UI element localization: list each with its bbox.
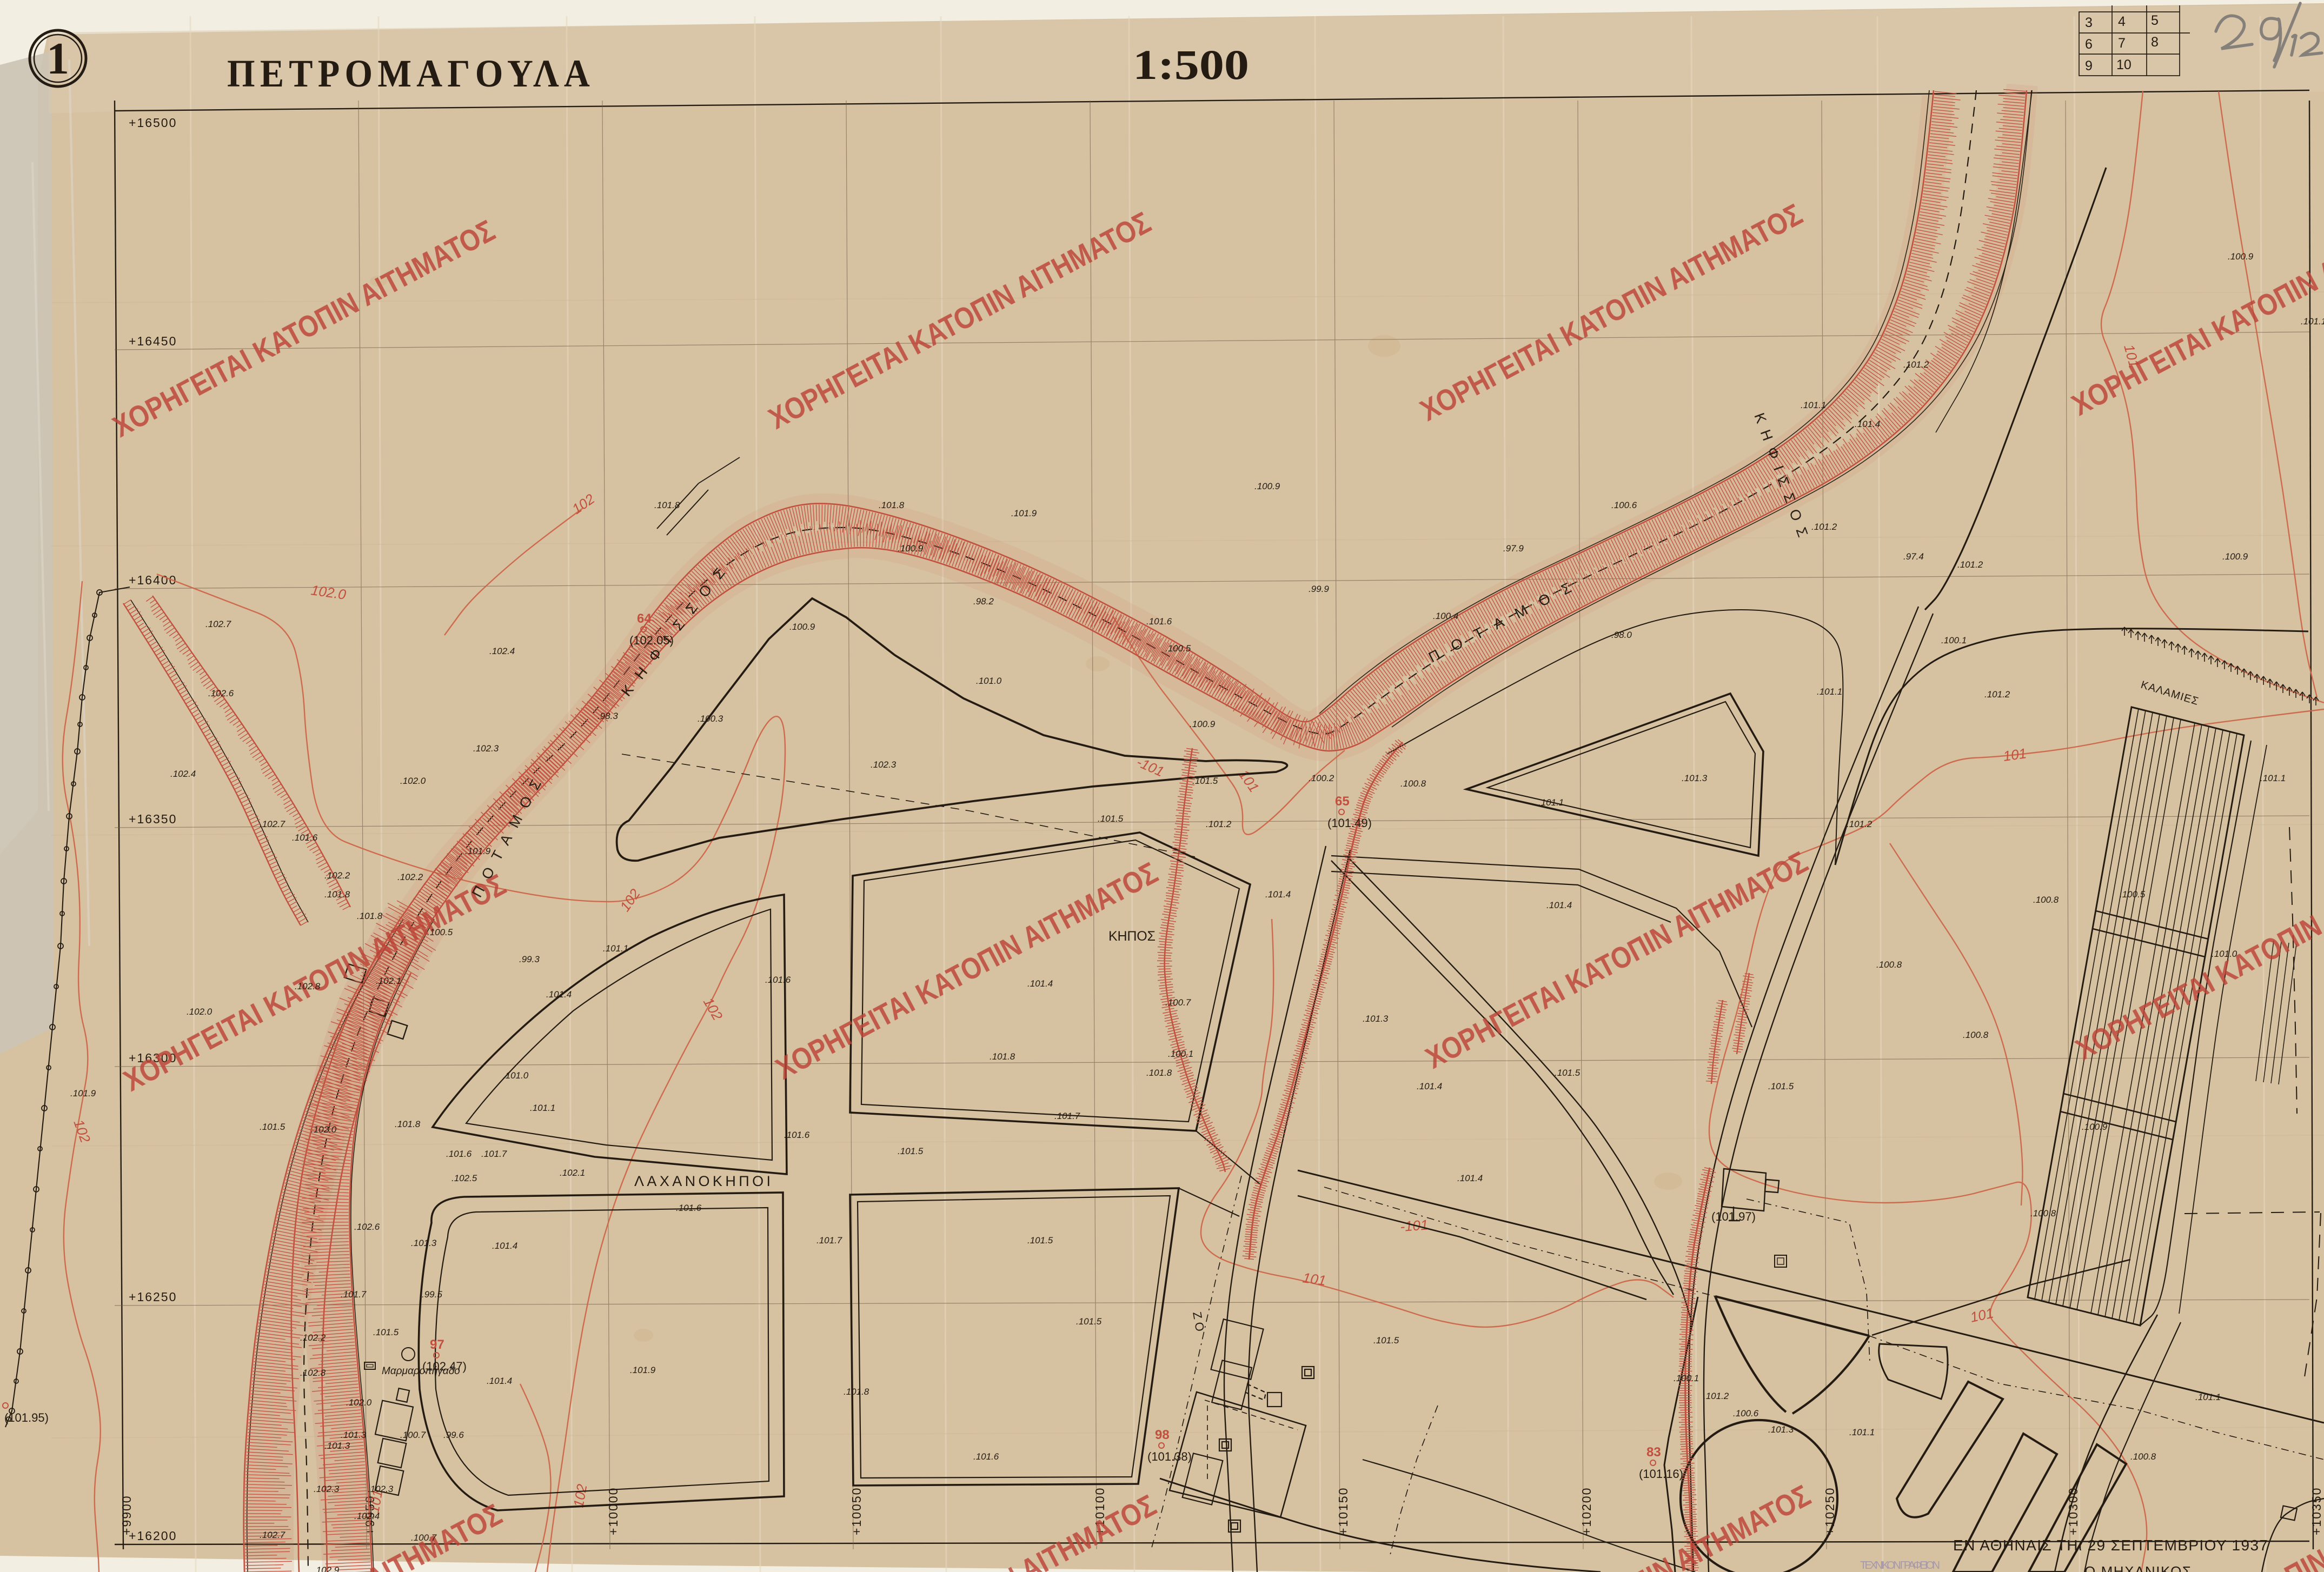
svg-text:.99.6: .99.6 <box>443 1430 464 1440</box>
svg-text:.100.5: .100.5 <box>1165 643 1191 654</box>
svg-text:.101.1: .101.1 <box>1817 687 1842 697</box>
svg-text:.101.6: .101.6 <box>765 975 791 985</box>
svg-text:.100.8: .100.8 <box>1876 960 1902 970</box>
svg-text:.101.8: .101.8 <box>990 1051 1015 1062</box>
svg-text:10: 10 <box>2116 57 2132 72</box>
svg-text:3: 3 <box>2085 15 2093 30</box>
svg-text:.101.6: .101.6 <box>446 1149 472 1159</box>
svg-text:+10250: +10250 <box>1823 1487 1837 1535</box>
svg-text:.102.2: .102.2 <box>324 870 350 881</box>
svg-text:+16250: +16250 <box>129 1290 177 1304</box>
svg-text:.101.1: .101.1 <box>1849 1427 1875 1437</box>
svg-text:.100.1: .100.1 <box>1941 635 1967 645</box>
svg-text:+10200: +10200 <box>1579 1487 1593 1535</box>
svg-text:.101.1: .101.1 <box>603 943 628 954</box>
svg-text:+10150: +10150 <box>1336 1487 1350 1535</box>
svg-text:(101.97): (101.97) <box>1711 1210 1756 1223</box>
svg-text:.102.4: .102.4 <box>354 1511 380 1521</box>
svg-text:.101.7: .101.7 <box>341 1289 367 1300</box>
svg-text:(101.38): (101.38) <box>1147 1450 1192 1463</box>
svg-text:.102.8: .102.8 <box>300 1368 326 1378</box>
svg-text:64: 64 <box>637 611 652 626</box>
svg-text:.101.3: .101.3 <box>341 1430 367 1440</box>
svg-text:.100.4: .100.4 <box>1433 611 1458 621</box>
svg-text:.102.3: .102.3 <box>871 760 897 770</box>
svg-text:(101.95): (101.95) <box>4 1411 49 1424</box>
svg-text:ΕΝ ΑΘΗΝΑΙΣ ΤΗι 29 ΣΕΠΤΕΜΒΡΙΟΥ: ΕΝ ΑΘΗΝΑΙΣ ΤΗι 29 ΣΕΠΤΕΜΒΡΙΟΥ 1937 <box>1953 1537 2269 1554</box>
svg-text:+16350: +16350 <box>129 812 177 826</box>
svg-text:97: 97 <box>430 1337 444 1352</box>
svg-text:+16450: +16450 <box>129 334 177 348</box>
svg-text:.101.3: .101.3 <box>1682 773 1708 783</box>
svg-text:.101.0: .101.0 <box>976 676 1002 686</box>
svg-text:.102.6: .102.6 <box>354 1222 380 1232</box>
svg-text:.101.5: .101.5 <box>898 1146 924 1156</box>
svg-text:.101.8: .101.8 <box>324 889 350 900</box>
svg-text:.101.5: .101.5 <box>1768 1081 1794 1091</box>
svg-text:(101.49): (101.49) <box>1327 816 1372 830</box>
svg-text:.101.4: .101.4 <box>1417 1081 1442 1091</box>
svg-text:.101.3: .101.3 <box>324 1441 350 1451</box>
svg-text:.102.1: .102.1 <box>560 1168 585 1178</box>
svg-text:.101.1: .101.1 <box>1801 400 1826 410</box>
svg-text:.99.5: .99.5 <box>422 1289 442 1300</box>
svg-text:.101.2: .101.2 <box>1811 522 1837 532</box>
svg-text:.102.0: .102.0 <box>187 1007 213 1017</box>
svg-text:(102.47): (102.47) <box>422 1360 467 1373</box>
svg-text:.101.7: .101.7 <box>1054 1111 1080 1121</box>
svg-text:5: 5 <box>2151 13 2159 28</box>
svg-text:.100.9: .100.9 <box>2082 1122 2108 1132</box>
svg-text:.101.4: .101.4 <box>1265 889 1291 900</box>
svg-text:.101.3: .101.3 <box>1768 1424 1794 1435</box>
svg-text:.101.9: .101.9 <box>1011 508 1037 518</box>
svg-text:ΚΗΠΟΣ: ΚΗΠΟΣ <box>1108 929 1158 944</box>
svg-text:.101.2: .101.2 <box>1847 819 1873 829</box>
svg-text:+16400: +16400 <box>129 573 177 587</box>
svg-text:.102.3: .102.3 <box>473 743 499 754</box>
svg-text:4: 4 <box>2118 14 2126 29</box>
svg-text:ΛΑΧΑΝΟΚΗΠΟΙ: ΛΑΧΑΝΟΚΗΠΟΙ <box>634 1173 774 1189</box>
svg-text:+9900: +9900 <box>119 1495 134 1535</box>
svg-text:.101.2: .101.2 <box>1957 559 1983 570</box>
svg-text:(102.05): (102.05) <box>629 634 674 647</box>
svg-text:Ο ΜΗΧΑΝΙΚΟΣ: Ο ΜΗΧΑΝΙΚΟΣ <box>2084 1563 2193 1572</box>
svg-text:.100.9: .100.9 <box>1190 719 1216 729</box>
svg-text:.101.1: .101.1 <box>2260 773 2286 783</box>
svg-text:.100.2: .100.2 <box>1309 773 1334 783</box>
svg-text:.102.7: .102.7 <box>205 619 231 629</box>
svg-text:.101.0: .101.0 <box>2212 949 2237 959</box>
svg-text:.101.4: .101.4 <box>546 989 572 1000</box>
svg-text:.101.2: .101.2 <box>1703 1391 1729 1401</box>
svg-text:8: 8 <box>2151 35 2159 50</box>
svg-text:.101.9: .101.9 <box>465 846 491 856</box>
svg-text:.100.6: .100.6 <box>1733 1408 1759 1418</box>
svg-text:(101.16): (101.16) <box>1639 1467 1683 1481</box>
svg-text:ΠΕΤΡΟΜΑΓΟΥΛΑ: ΠΕΤΡΟΜΑΓΟΥΛΑ <box>227 52 595 95</box>
svg-text:.100.9: .100.9 <box>2222 551 2248 562</box>
svg-text:+10000: +10000 <box>606 1487 620 1535</box>
svg-text:.101.8: .101.8 <box>1146 1068 1172 1078</box>
svg-text:.101.2: .101.2 <box>1206 819 1232 829</box>
svg-text:.101.5: .101.5 <box>373 1327 399 1337</box>
svg-text:.98.3: .98.3 <box>597 711 618 721</box>
svg-text:83: 83 <box>1646 1445 1661 1460</box>
svg-text:.101.6: .101.6 <box>784 1130 810 1140</box>
svg-text:.102.0: .102.0 <box>346 1397 372 1408</box>
svg-text:.100.8: .100.8 <box>2033 895 2059 905</box>
svg-text:.102.7: .102.7 <box>260 1530 285 1540</box>
svg-text:.100.9: .100.9 <box>2228 251 2254 262</box>
svg-text:.101.4: .101.4 <box>1546 900 1572 910</box>
svg-text:.101.4: .101.4 <box>1457 1173 1483 1183</box>
svg-text:.101.6: .101.6 <box>1146 616 1172 627</box>
svg-text:.101.8: .101.8 <box>879 500 905 510</box>
svg-text:.102.0: .102.0 <box>400 776 426 786</box>
svg-text:.102.4: .102.4 <box>170 769 196 779</box>
svg-text:.102.6: .102.6 <box>208 688 234 698</box>
svg-text:.101.4: .101.4 <box>1855 419 1880 429</box>
svg-text:.101.5: .101.5 <box>1076 1316 1102 1327</box>
svg-text:.101.8: .101.8 <box>395 1119 421 1129</box>
svg-text:.101.8: .101.8 <box>357 911 383 921</box>
svg-text:.101.5: .101.5 <box>1192 776 1218 786</box>
svg-text:+10300: +10300 <box>2066 1487 2080 1535</box>
svg-text:.102.2: .102.2 <box>397 872 423 882</box>
svg-text:.100.7: .100.7 <box>400 1430 426 1440</box>
svg-text:.101.4: .101.4 <box>1027 978 1053 989</box>
svg-text:1:500: 1:500 <box>1133 41 1249 88</box>
svg-text:.100.7: .100.7 <box>411 1533 437 1543</box>
svg-text:9: 9 <box>2085 58 2093 74</box>
svg-text:+16500: +16500 <box>129 116 177 130</box>
svg-text:.101.8: .101.8 <box>844 1387 869 1397</box>
svg-text:98: 98 <box>1155 1428 1170 1442</box>
svg-text:6: 6 <box>2085 37 2093 52</box>
svg-text:.101.6: .101.6 <box>676 1203 702 1213</box>
svg-text:.102.2: .102.2 <box>300 1333 326 1343</box>
svg-text:+10050: +10050 <box>849 1487 864 1535</box>
svg-text:.97.9: .97.9 <box>1503 543 1524 554</box>
svg-text:.101.3: .101.3 <box>411 1238 437 1248</box>
svg-text:.102.8: .102.8 <box>295 981 321 991</box>
svg-text:.102.5: .102.5 <box>451 1173 477 1183</box>
svg-text:+10350: +10350 <box>2309 1487 2323 1535</box>
svg-text:7: 7 <box>2118 36 2126 51</box>
svg-text:101: 101 <box>1302 1269 1327 1289</box>
svg-text:.101.7: .101.7 <box>816 1235 842 1245</box>
svg-text:.100.9: .100.9 <box>1254 481 1280 491</box>
svg-text:.100.8: .100.8 <box>1963 1030 1989 1040</box>
svg-text:.101.9: .101.9 <box>630 1365 656 1375</box>
svg-text:.101.8: .101.8 <box>654 500 680 510</box>
svg-text:.102.0: .102.0 <box>311 1124 337 1135</box>
svg-text:1: 1 <box>47 34 69 84</box>
svg-text:.100.5: .100.5 <box>2120 889 2146 900</box>
svg-text:.102.3: .102.3 <box>314 1484 340 1494</box>
svg-text:.99.9: .99.9 <box>1309 584 1329 594</box>
svg-text:.101.9: .101.9 <box>70 1088 96 1098</box>
svg-text:.100.7: .100.7 <box>1165 997 1191 1008</box>
svg-text:.100.9: .100.9 <box>898 543 924 554</box>
svg-text:.100.1: .100.1 <box>1168 1049 1193 1059</box>
svg-text:.101.3: .101.3 <box>1363 1014 1389 1024</box>
svg-text:.98.2: .98.2 <box>973 596 994 607</box>
svg-text:.102.1: .102.1 <box>376 976 401 986</box>
svg-text:ΤΕΧΝΙΚΟΝ ΓΡΑΦΕΙΟΝ: ΤΕΧΝΙΚΟΝ ΓΡΑΦΕΙΟΝ <box>1860 1560 1941 1571</box>
svg-text:.102.4: .102.4 <box>489 646 515 656</box>
svg-text:.100.9: .100.9 <box>789 622 815 632</box>
svg-text:.101.5: .101.5 <box>1555 1068 1581 1078</box>
svg-text:.100.8: .100.8 <box>2130 1451 2156 1462</box>
svg-text:.101.2: .101.2 <box>1903 359 1929 370</box>
svg-text:.100.1: .100.1 <box>1674 1373 1699 1383</box>
svg-text:+16200: +16200 <box>129 1529 177 1543</box>
svg-text:.101.6: .101.6 <box>292 832 318 843</box>
svg-text:.101.7: .101.7 <box>481 1149 507 1159</box>
svg-text:.101.0: .101.0 <box>503 1070 529 1081</box>
svg-text:.99.3: .99.3 <box>519 954 540 964</box>
svg-text:.100.6: .100.6 <box>1611 500 1637 510</box>
svg-text:.98.0: .98.0 <box>1611 630 1632 640</box>
svg-text:.100.8: .100.8 <box>1400 778 1426 789</box>
svg-text:.102.3: .102.3 <box>368 1484 394 1494</box>
svg-text:.100.3: .100.3 <box>698 714 723 724</box>
svg-text:.101.5: .101.5 <box>1373 1335 1399 1345</box>
svg-text:.101.4: .101.4 <box>492 1241 517 1251</box>
svg-text:.100.5: .100.5 <box>427 927 453 937</box>
svg-text:.101.6: .101.6 <box>973 1451 999 1462</box>
svg-text:.101.4: .101.4 <box>487 1376 512 1386</box>
svg-text:.101.2: .101.2 <box>1984 689 2010 700</box>
svg-text:.101.1: .101.1 <box>2195 1392 2221 1402</box>
svg-text:.102.9: .102.9 <box>314 1565 340 1572</box>
svg-text:65: 65 <box>1335 794 1350 809</box>
svg-text:.101.5: .101.5 <box>1027 1235 1053 1245</box>
svg-text:.101.1: .101.1 <box>530 1103 555 1113</box>
svg-text:.100.8: .100.8 <box>2030 1208 2056 1218</box>
svg-text:.102.7: .102.7 <box>260 819 285 829</box>
svg-text:.97.4: .97.4 <box>1903 551 1924 562</box>
svg-text:.101.5: .101.5 <box>1098 814 1124 824</box>
svg-text:.101.5: .101.5 <box>260 1122 285 1132</box>
svg-text:101: 101 <box>2002 745 2028 764</box>
svg-text:.101.1: .101.1 <box>2301 316 2324 327</box>
svg-text:.101.1: .101.1 <box>1538 797 1564 808</box>
